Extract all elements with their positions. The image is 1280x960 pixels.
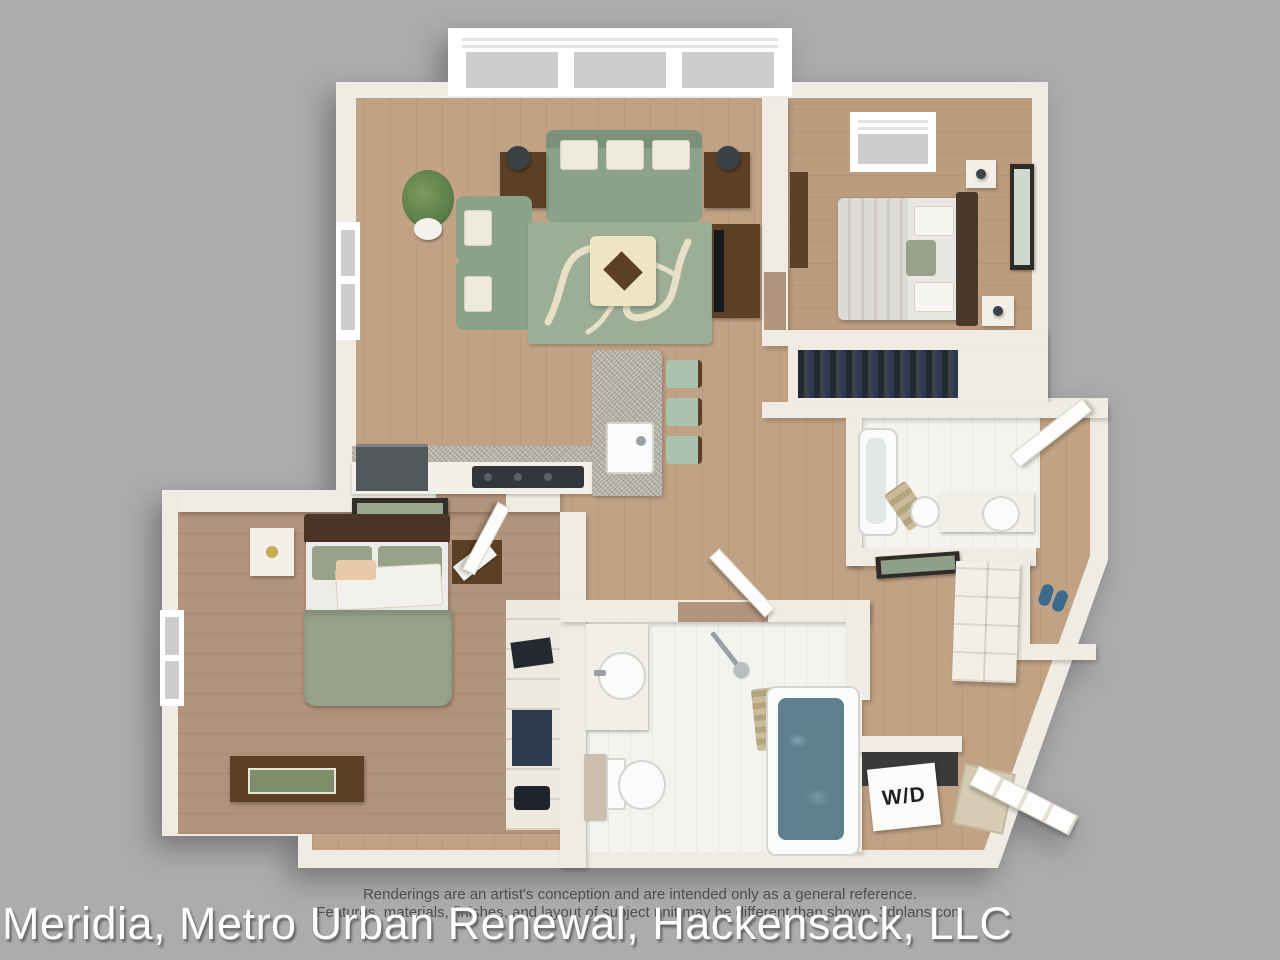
watermark-text: Meridia, Metro Urban Renewal, Hackensack… (2, 898, 1012, 950)
shower-head (734, 662, 749, 677)
bedroom2-dresser-desk (230, 756, 364, 802)
living-side-window (336, 222, 360, 340)
ottoman (590, 236, 656, 306)
hall-dresser (952, 561, 1020, 683)
nightstand-decor (266, 546, 278, 558)
bay-window (448, 28, 792, 96)
washer-dryer-unit: W/D (867, 763, 941, 832)
closet-item-dark (514, 786, 550, 810)
leaning-art-print (881, 555, 956, 574)
bathtub-water (778, 698, 844, 840)
sofa-pillow (652, 140, 690, 170)
bed-duvet-striped (838, 198, 908, 320)
kitchen-faucet (636, 436, 646, 446)
bed-accent-pillow (336, 560, 376, 580)
apartment-3d-floorplan: W/D (0, 0, 1280, 960)
bed-accent-pillow (906, 240, 936, 276)
sofa-pillow (560, 140, 598, 170)
bedroom2-duvet (304, 610, 452, 706)
sofa-pillow (606, 140, 644, 170)
skylight (850, 112, 936, 172)
closet-hanging-clothes (798, 350, 958, 398)
bath-cabinet (584, 754, 606, 820)
closet-item-denim (512, 710, 552, 766)
bedroom2-closet-shelves (506, 600, 560, 830)
bathtub-2-basin (866, 438, 886, 524)
wall-entry-closet-bottom (1014, 644, 1096, 660)
bedroom1-headboard (956, 192, 978, 326)
window-blinds (462, 36, 778, 52)
wall-wd-top (846, 736, 962, 752)
burner (544, 473, 552, 481)
toilet-bowl (618, 760, 666, 810)
sink-faucet (594, 670, 606, 676)
bedroom1-tv-stand (790, 172, 808, 268)
washer-dryer-label: W/D (881, 783, 927, 811)
toilet-2 (910, 496, 940, 528)
sink-2 (982, 496, 1020, 532)
bedroom2-headboard (304, 514, 450, 544)
armchair-pillow (464, 276, 492, 312)
bar-stool (666, 398, 702, 426)
tv-screen (714, 230, 724, 312)
wall-art-frame (1010, 164, 1034, 270)
wall-bedroom2-right (560, 512, 586, 868)
plant-pot (414, 218, 442, 240)
desk-books (248, 768, 336, 794)
bathtub-2 (858, 428, 898, 536)
armchair-pillow (464, 210, 492, 246)
bar-stool (666, 436, 702, 464)
cooktop (472, 466, 584, 488)
bed-pillow (914, 282, 954, 312)
nightstand-lamp (993, 306, 1003, 316)
wall-bedroom1-closet (762, 330, 1048, 346)
refrigerator (356, 444, 428, 491)
window-pane (165, 617, 179, 655)
ottoman-tray (603, 251, 643, 291)
bed-pillow (914, 206, 954, 236)
dresser-divider (983, 562, 989, 682)
bedroom2-nightstand (250, 528, 294, 576)
armchair-1 (456, 196, 532, 262)
sofa (546, 130, 702, 222)
table-lamp-left (506, 146, 530, 170)
burner (484, 473, 492, 481)
wall-art-print (1014, 169, 1030, 265)
skylight-blinds (858, 120, 928, 134)
bar-stool (666, 360, 702, 388)
floorplan-render: W/D Renderings are an artist's conceptio… (0, 0, 1280, 960)
closet-item-dark (510, 637, 553, 668)
nightstand (982, 296, 1014, 326)
burner (514, 473, 522, 481)
armchair-2 (456, 260, 532, 330)
tv-console (712, 224, 760, 318)
kitchen-sink (606, 422, 654, 474)
table-lamp-right (716, 146, 740, 170)
window-pane (341, 230, 355, 276)
bedroom1-bed (838, 198, 962, 320)
window-pane (165, 661, 179, 699)
bedroom2-window (160, 610, 184, 706)
bedroom1-doorway (764, 272, 786, 330)
window-pane (341, 284, 355, 330)
wall-above-bathroom2 (762, 402, 1108, 418)
nightstand (966, 160, 996, 188)
sink-1 (598, 652, 646, 700)
wall-bathroom1-right (846, 600, 870, 700)
nightstand-lamp (976, 169, 986, 179)
